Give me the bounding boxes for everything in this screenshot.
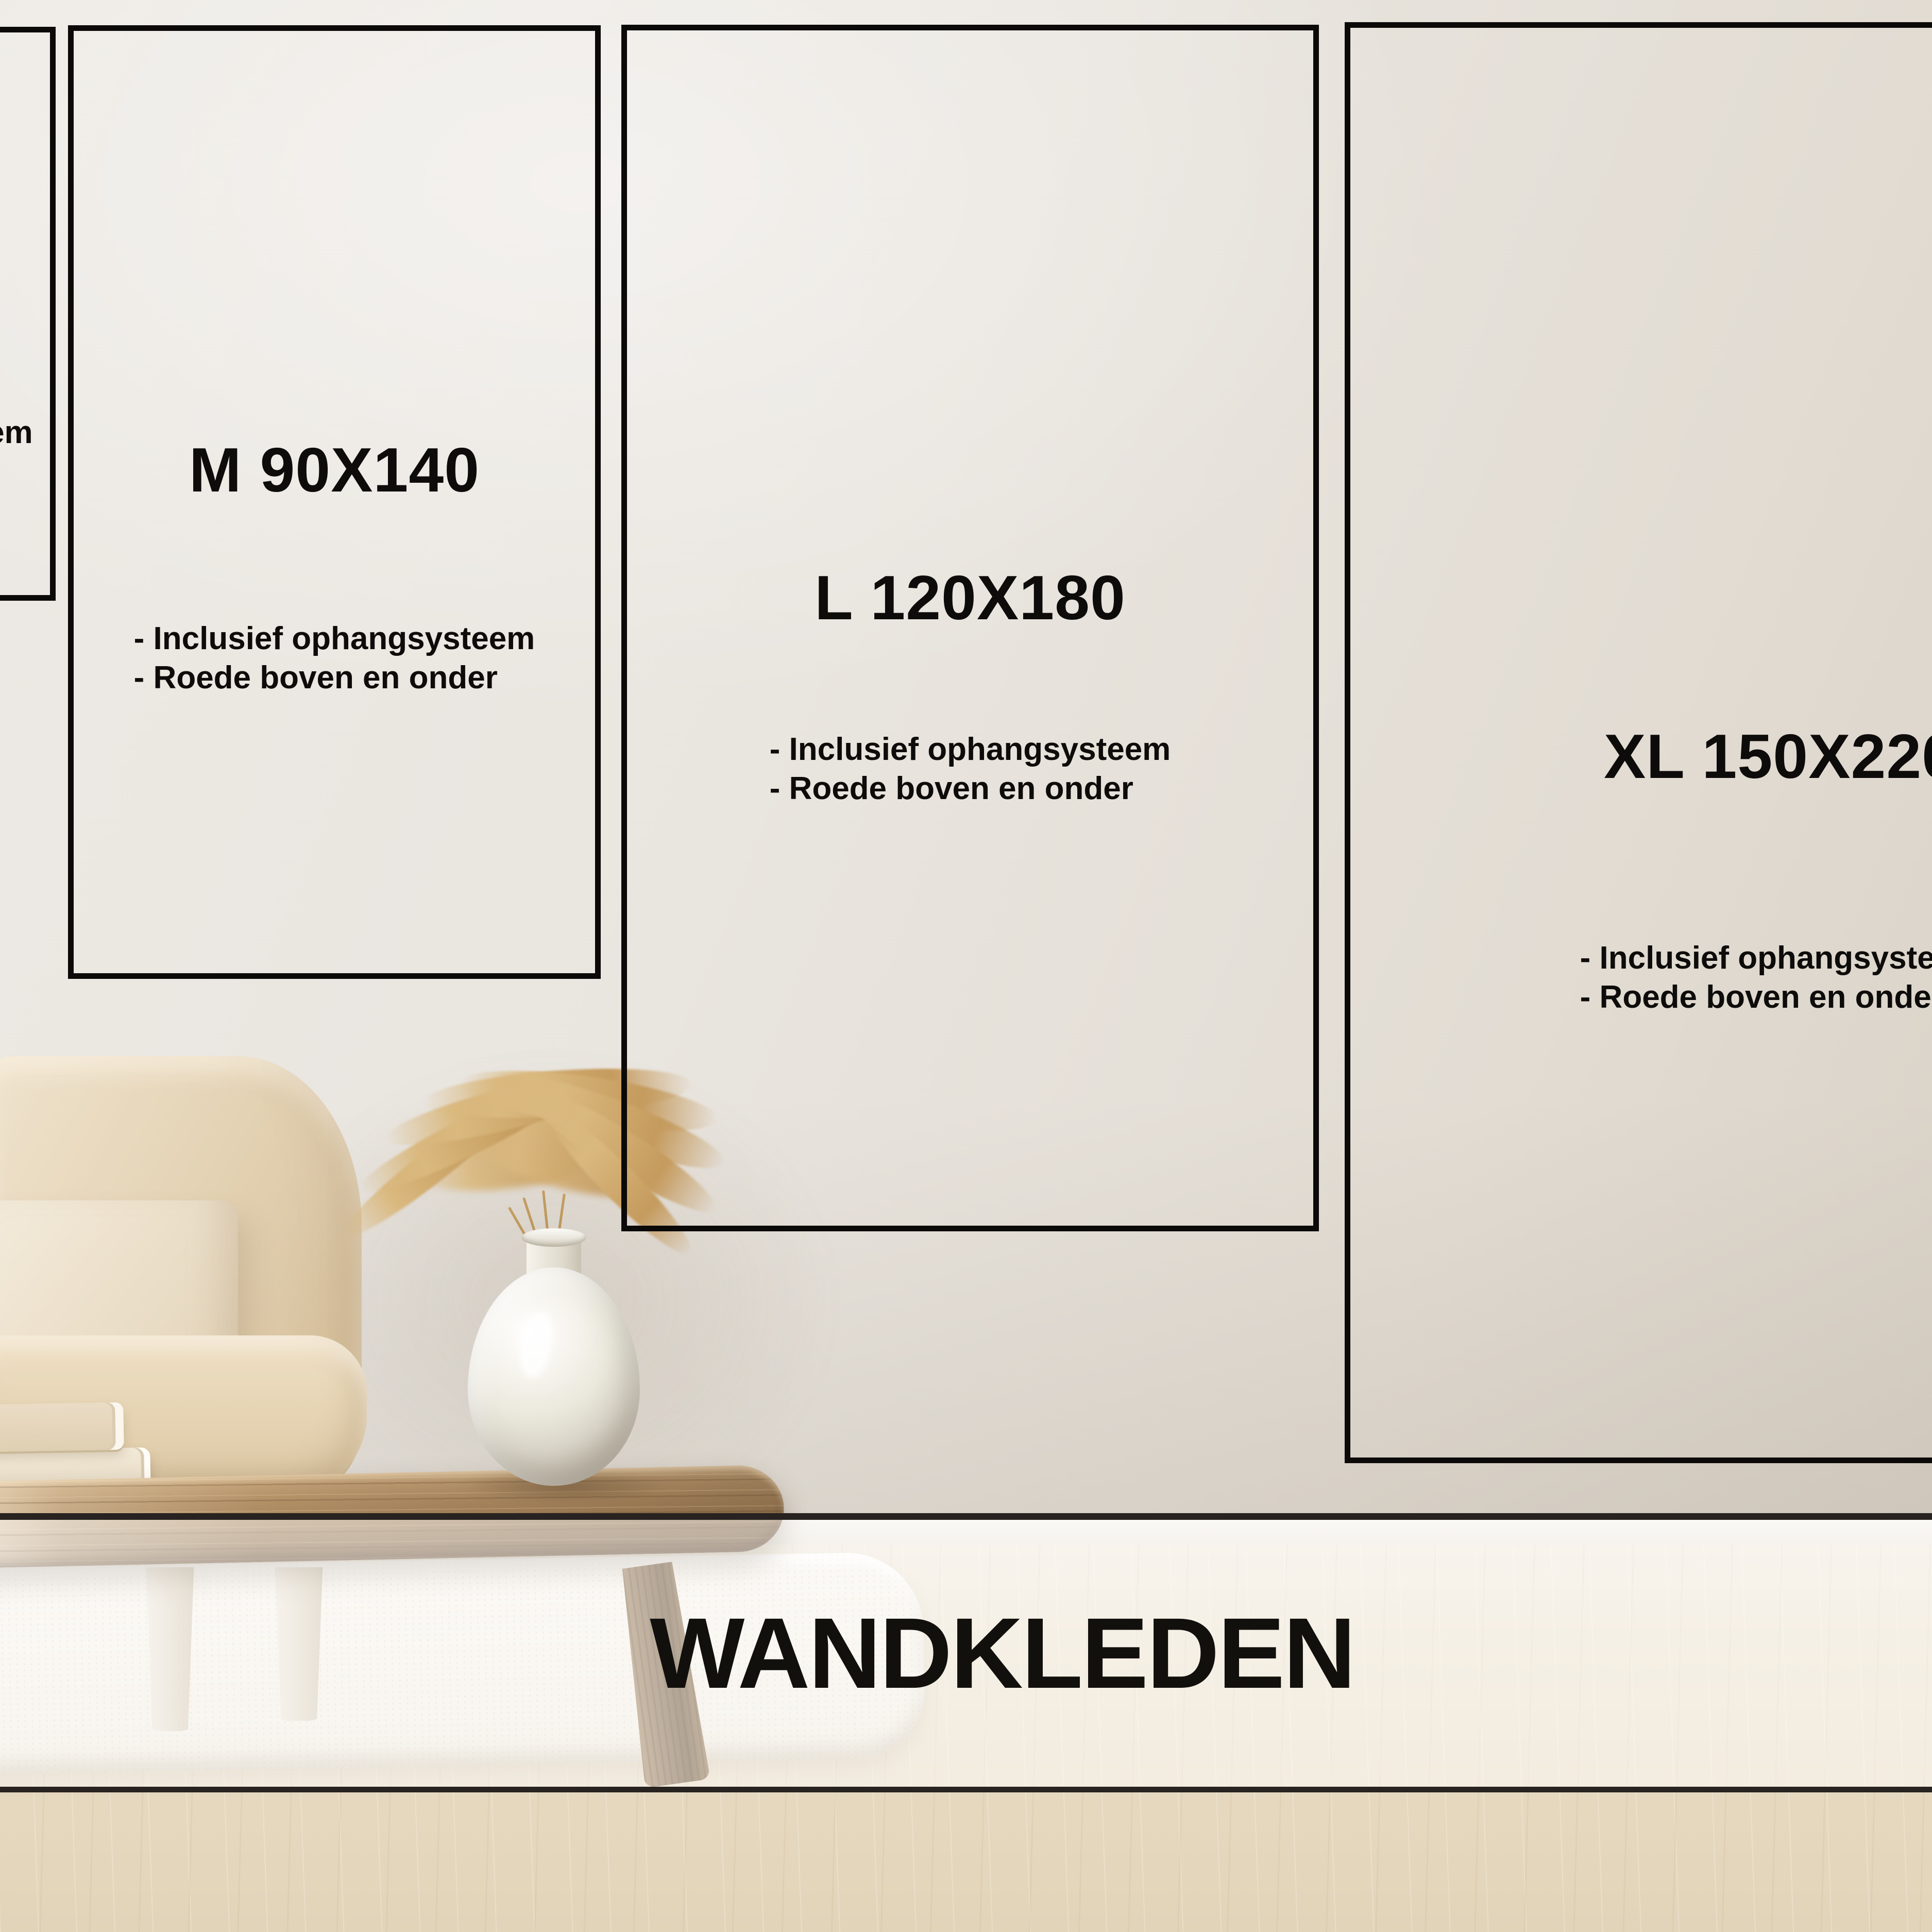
size-box-l: L 120X180 - Inclusief ophangsysteem - Ro… xyxy=(621,25,1319,1231)
banner-bottom-rule xyxy=(0,1787,1932,1792)
size-box-m: M 90X140 - Inclusief ophangsysteem - Roe… xyxy=(68,25,601,979)
size-features-l: - Inclusief ophangsysteem - Roede boven … xyxy=(627,730,1313,808)
size-features-xl: - Inclusief ophangsysteem - Roede boven … xyxy=(1350,939,1932,1017)
feature-item: - Inclusief ophangsysteem xyxy=(770,730,1171,769)
feature-item: - Roede boven en onder xyxy=(770,769,1171,808)
size-s-text-fragment: em xyxy=(0,413,48,452)
wandkleden-size-mockup: WANDKLEDEN em M 90X140 - Inclusief ophan… xyxy=(0,0,1932,1932)
banner-top-rule xyxy=(0,1513,1932,1520)
size-label-l: L 120X180 xyxy=(627,566,1313,629)
vase-lip xyxy=(521,1228,586,1247)
feature-item: - Inclusief ophangsysteem xyxy=(134,619,535,658)
feature-item: - Roede boven en onder xyxy=(1580,978,1932,1017)
size-features-m: - Inclusief ophangsysteem - Roede boven … xyxy=(74,619,595,698)
size-box-s xyxy=(0,27,56,601)
banner-title: WANDKLEDEN xyxy=(590,1603,1414,1704)
book xyxy=(0,1402,124,1452)
feature-item: - Roede boven en onder xyxy=(134,658,535,698)
size-label-xl: XL 150X220 xyxy=(1350,725,1932,788)
size-box-xl: XL 150X220 - Inclusief ophangsysteem - R… xyxy=(1345,22,1932,1463)
size-label-m: M 90X140 xyxy=(74,438,595,501)
feature-item: - Inclusief ophangsysteem xyxy=(1580,939,1932,978)
